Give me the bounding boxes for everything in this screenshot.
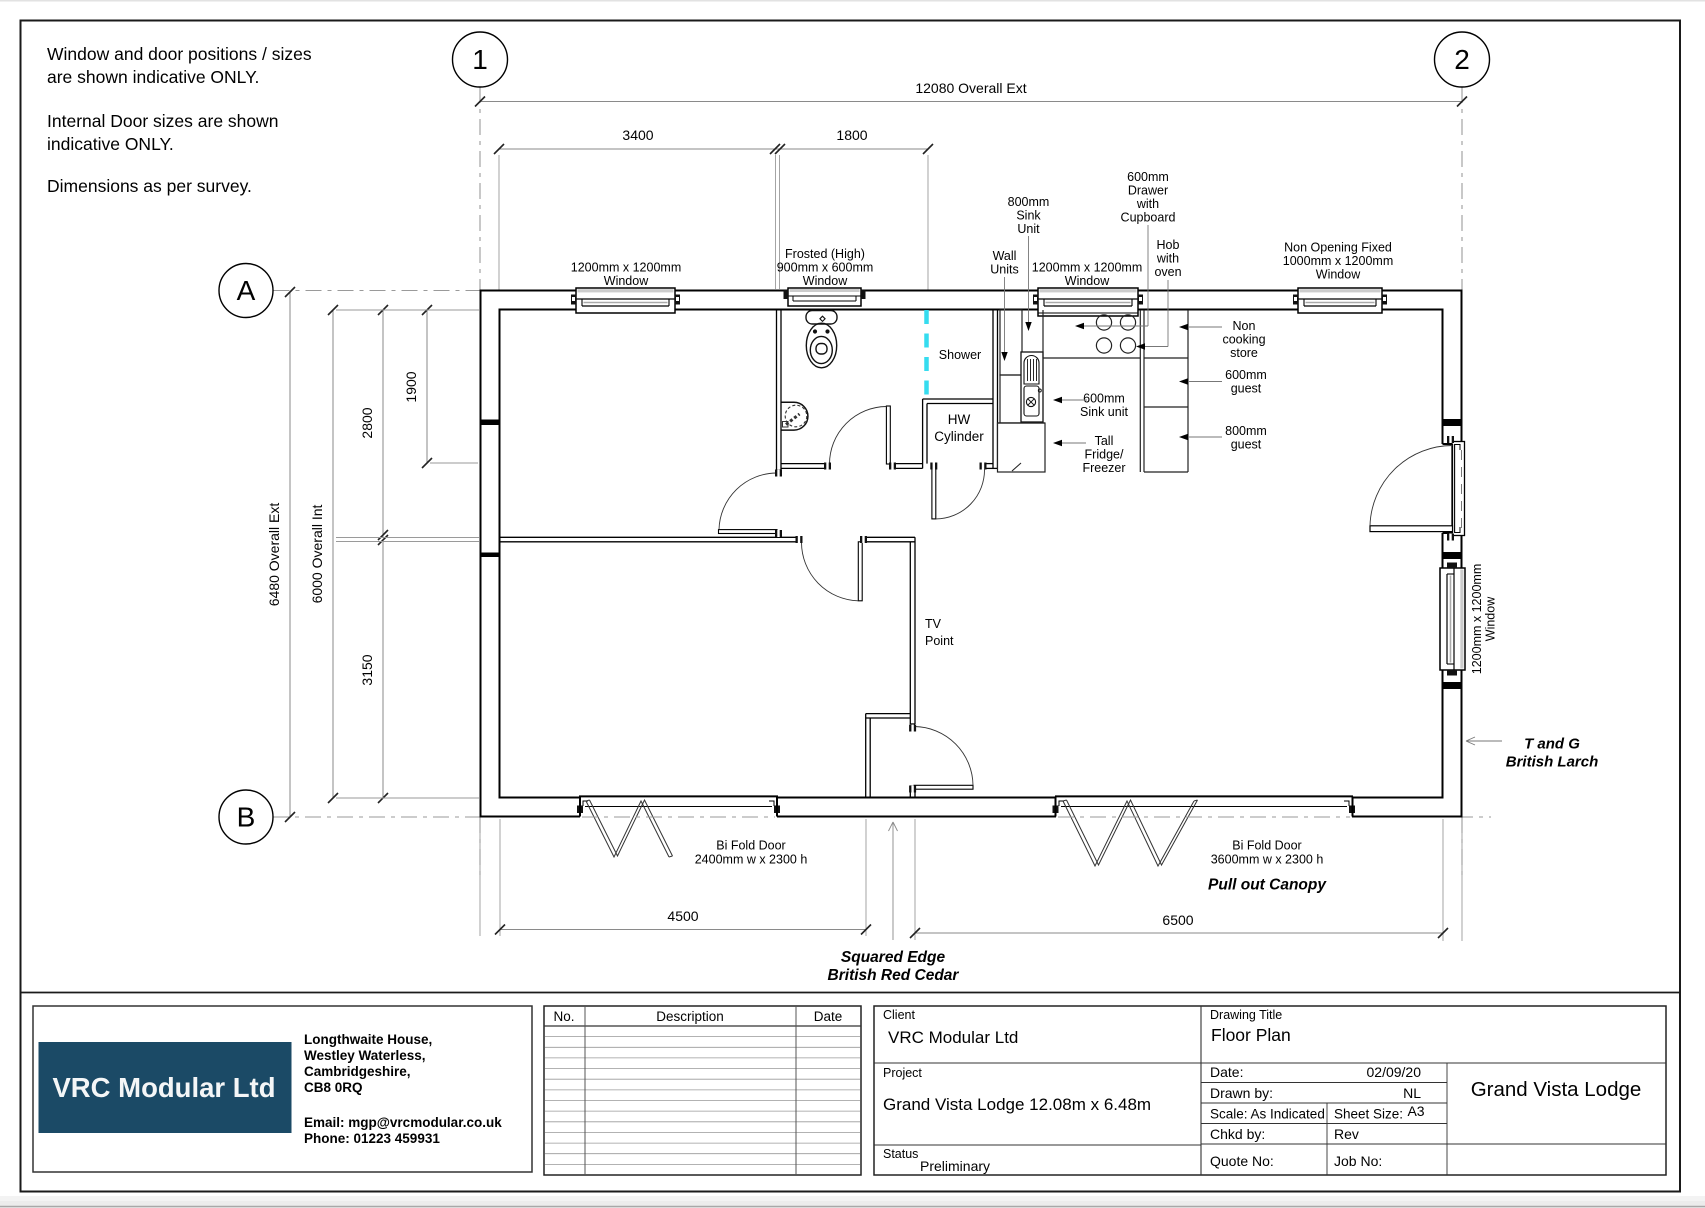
svg-text:guest: guest [1231,382,1262,396]
svg-text:Shower: Shower [939,348,981,362]
svg-text:indicative ONLY.: indicative ONLY. [47,134,174,154]
svg-text:Window and door positions / si: Window and door positions / sizes [47,44,312,64]
svg-text:Date: Date [814,1009,843,1024]
svg-text:Window: Window [604,274,649,288]
svg-text:Dimensions as per survey.: Dimensions as per survey. [47,176,252,196]
svg-text:Scale: As Indicated: Scale: As Indicated [1210,1107,1325,1122]
svg-text:Pull out Canopy: Pull out Canopy [1208,877,1327,894]
svg-text:Non: Non [1233,319,1256,333]
svg-text:A3: A3 [1407,1103,1424,1119]
svg-text:Quote No:: Quote No: [1210,1153,1274,1169]
svg-text:T and G: T and G [1524,736,1580,753]
svg-text:Preliminary: Preliminary [920,1158,990,1174]
svg-text:Window: Window [1065,274,1110,288]
svg-text:600mm: 600mm [1225,368,1267,382]
svg-text:CB8 0RQ: CB8 0RQ [304,1080,363,1095]
svg-text:6500: 6500 [1162,912,1193,928]
svg-text:Wall: Wall [993,249,1017,263]
svg-text:Project: Project [883,1066,922,1080]
svg-text:British Larch: British Larch [1506,754,1599,771]
svg-text:1200mm x 1200mm: 1200mm x 1200mm [571,261,681,275]
svg-text:Email: mgp@vrcmodular.co.uk: Email: mgp@vrcmodular.co.uk [304,1115,502,1130]
svg-text:2800: 2800 [359,407,375,438]
svg-text:Drawer: Drawer [1128,184,1168,198]
svg-text:800mm: 800mm [1008,195,1050,209]
svg-text:Bi Fold Door: Bi Fold Door [716,839,785,853]
svg-text:Job No:: Job No: [1334,1153,1382,1169]
svg-text:Sink unit: Sink unit [1080,405,1128,419]
svg-text:Frosted (High): Frosted (High) [785,247,865,261]
svg-text:1: 1 [472,44,488,75]
svg-text:6480 Overall Ext: 6480 Overall Ext [266,503,282,607]
svg-text:2400mm w x 2300 h: 2400mm w x 2300 h [695,853,808,867]
svg-text:cooking: cooking [1222,333,1265,347]
svg-text:Units: Units [990,263,1018,277]
svg-text:Cupboard: Cupboard [1121,211,1176,225]
svg-text:12080 Overall Ext: 12080 Overall Ext [915,80,1026,96]
svg-text:1200mm x 1200mm: 1200mm x 1200mm [1470,564,1484,674]
svg-text:Longthwaite House,: Longthwaite House, [304,1032,432,1047]
svg-text:B: B [237,802,256,833]
svg-text:Drawing Title: Drawing Title [1210,1008,1282,1022]
svg-text:Cylinder: Cylinder [934,429,984,444]
svg-text:No.: No. [553,1009,574,1024]
svg-text:Grand Vista Lodge 12.08m x 6.4: Grand Vista Lodge 12.08m x 6.48m [883,1095,1151,1114]
svg-text:600mm: 600mm [1127,170,1169,184]
svg-text:3400: 3400 [622,127,653,143]
svg-text:1800: 1800 [836,127,867,143]
svg-text:600mm: 600mm [1083,392,1125,406]
svg-text:Rev: Rev [1334,1126,1359,1142]
svg-text:Squared Edge: Squared Edge [841,949,946,966]
svg-text:A: A [237,275,256,306]
svg-text:Freezer: Freezer [1082,461,1125,475]
svg-text:Phone: 01223 459931: Phone: 01223 459931 [304,1131,440,1146]
svg-text:Window: Window [1484,596,1498,641]
svg-text:4500: 4500 [667,908,698,924]
svg-text:Grand Vista Lodge: Grand Vista Lodge [1471,1078,1642,1101]
svg-text:Westley Waterless,: Westley Waterless, [304,1048,426,1063]
svg-text:02/09/20: 02/09/20 [1367,1064,1422,1080]
svg-text:Point: Point [925,634,954,648]
svg-text:HW: HW [948,412,971,427]
svg-text:1000mm x 1200mm: 1000mm x 1200mm [1283,254,1393,268]
svg-text:Cambridgeshire,: Cambridgeshire, [304,1064,411,1079]
svg-text:Date:: Date: [1210,1064,1243,1080]
svg-text:Floor Plan: Floor Plan [1211,1025,1291,1045]
svg-text:Window: Window [1316,268,1361,282]
svg-text:800mm: 800mm [1225,424,1267,438]
svg-text:oven: oven [1154,265,1181,279]
svg-text:Sheet Size:: Sheet Size: [1334,1107,1403,1122]
svg-text:with: with [1136,197,1159,211]
svg-text:guest: guest [1231,438,1262,452]
svg-text:3150: 3150 [359,654,375,685]
svg-text:VRC Modular Ltd: VRC Modular Ltd [888,1028,1018,1047]
svg-text:900mm x 600mm: 900mm x 600mm [777,261,874,275]
svg-text:Non Opening Fixed: Non Opening Fixed [1284,241,1392,255]
svg-text:1900: 1900 [403,371,419,402]
svg-text:Bi Fold Door: Bi Fold Door [1232,839,1301,853]
svg-text:Description: Description [656,1009,724,1024]
svg-text:VRC Modular Ltd: VRC Modular Ltd [52,1072,275,1103]
svg-text:TV: TV [925,617,942,631]
svg-text:British Red Cedar: British Red Cedar [828,967,960,984]
svg-text:6000 Overall Int: 6000 Overall Int [309,504,325,603]
svg-text:store: store [1230,346,1258,360]
svg-text:with: with [1156,252,1179,266]
svg-text:3600mm w x 2300 h: 3600mm w x 2300 h [1211,853,1324,867]
svg-text:2: 2 [1454,44,1470,75]
svg-text:Client: Client [883,1008,915,1022]
svg-text:Sink: Sink [1016,209,1041,223]
svg-text:Internal Door sizes are shown: Internal Door sizes are shown [47,111,279,131]
svg-text:Tall: Tall [1095,434,1114,448]
svg-text:Status: Status [883,1147,918,1161]
svg-text:Unit: Unit [1017,222,1040,236]
svg-text:Drawn by:: Drawn by: [1210,1085,1273,1101]
svg-text:Window: Window [803,274,848,288]
svg-text:are shown indicative ONLY.: are shown indicative ONLY. [47,67,259,87]
svg-text:1200mm x 1200mm: 1200mm x 1200mm [1032,261,1142,275]
svg-text:NL: NL [1403,1085,1421,1101]
svg-text:Fridge/: Fridge/ [1085,448,1124,462]
svg-text:Hob: Hob [1157,238,1180,252]
svg-text:Chkd by:: Chkd by: [1210,1126,1265,1142]
